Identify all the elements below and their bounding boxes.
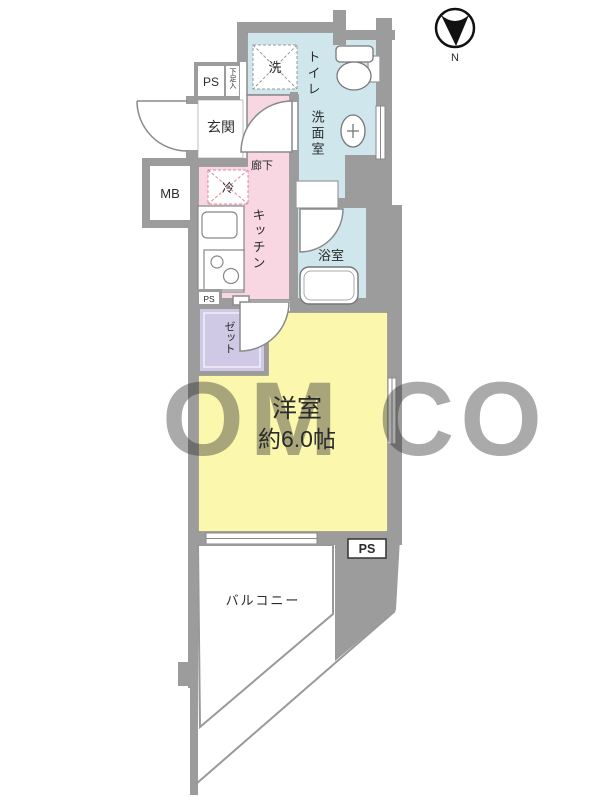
toilet-label: トイレ — [306, 50, 321, 98]
ps-closet-label: PS — [203, 294, 215, 304]
balcony-label: バルコニー — [226, 593, 301, 608]
washroom-sink — [341, 115, 365, 147]
room-balcony — [198, 545, 333, 727]
fridge-label: 冷 — [222, 181, 234, 195]
watermark-text: OM CO — [162, 361, 548, 478]
bathroom-label: 浴室 — [318, 248, 344, 263]
entrance-label: 玄関 — [207, 119, 235, 135]
vanity-counter — [296, 181, 338, 208]
entrance-door-arc — [137, 101, 187, 151]
ps-bottom-label: PS — [359, 542, 376, 556]
compass: N — [436, 9, 474, 64]
kitchen-counter — [198, 206, 244, 292]
mb-label: MB — [160, 186, 180, 201]
floorplan-page: MB PS 下足入 洗 冷 — [0, 0, 600, 800]
compass-north-label: N — [451, 52, 459, 64]
floorplan-drawing: MB PS 下足入 洗 冷 — [0, 0, 600, 800]
ps-top-label: PS — [203, 75, 219, 89]
washer-label: 洗 — [268, 60, 281, 75]
washroom-label: 洗面室 — [310, 110, 325, 158]
closet-label-line2: ゼット — [223, 321, 236, 354]
kitchen-label: キッチン — [251, 208, 266, 272]
bathtub — [300, 267, 358, 304]
hallway-label: 廊下 — [251, 158, 273, 172]
shoe-box-label: 下足入 — [229, 68, 237, 89]
